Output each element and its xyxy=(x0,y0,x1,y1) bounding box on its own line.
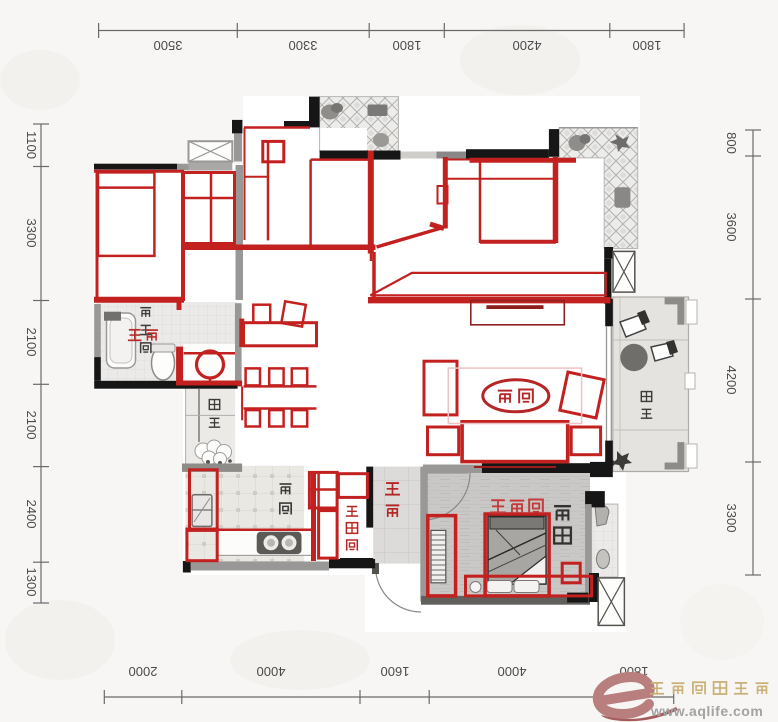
svg-text:1800: 1800 xyxy=(393,38,422,53)
svg-text:www.aqlife.com: www.aqlife.com xyxy=(650,703,763,719)
svg-text:800: 800 xyxy=(724,132,739,154)
svg-text:2400: 2400 xyxy=(24,500,39,529)
svg-text:2100: 2100 xyxy=(24,411,39,440)
svg-text:4200: 4200 xyxy=(513,38,542,53)
svg-text:4000: 4000 xyxy=(257,664,286,679)
svg-text:3500: 3500 xyxy=(154,38,183,53)
svg-text:3600: 3600 xyxy=(724,213,739,242)
svg-text:1600: 1600 xyxy=(381,664,410,679)
svg-text:1300: 1300 xyxy=(24,568,39,597)
svg-text:3300: 3300 xyxy=(24,219,39,248)
svg-text:4000: 4000 xyxy=(498,664,527,679)
svg-text:2000: 2000 xyxy=(129,664,158,679)
svg-text:4200: 4200 xyxy=(724,366,739,395)
svg-text:1800: 1800 xyxy=(633,38,662,53)
svg-text:2100: 2100 xyxy=(24,328,39,357)
svg-text:3300: 3300 xyxy=(289,38,318,53)
svg-text:1100: 1100 xyxy=(24,131,39,159)
svg-text:3300: 3300 xyxy=(724,504,739,533)
